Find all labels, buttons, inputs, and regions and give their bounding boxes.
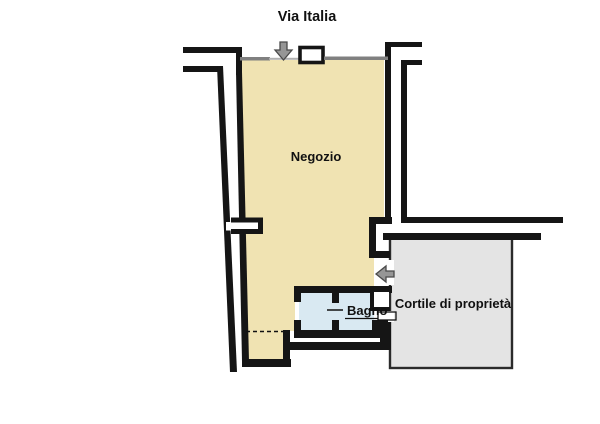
bagno-label: Bagno <box>347 303 388 318</box>
wall-topleft-outer-v <box>236 47 242 75</box>
wall-cortile-top <box>383 233 541 240</box>
wall-right-jog-h <box>369 217 392 224</box>
wall-bagno-bottom <box>294 330 391 338</box>
wall-topright-outer-h <box>385 42 422 47</box>
street-label: Via Italia <box>278 9 338 25</box>
wall-neighbor-east-h <box>401 217 563 223</box>
floor-plan: Via Italia <box>0 0 600 424</box>
wall-topleft-outer-h <box>183 47 242 53</box>
wall-topleft-inner-h <box>183 66 223 72</box>
storefront-glass-left <box>240 57 270 61</box>
wall-pocket-bottom <box>242 359 291 367</box>
recess-end-cap <box>258 218 263 235</box>
wall-outer-bottom <box>290 342 391 350</box>
wall-bagno-partition-top <box>332 293 339 303</box>
wall-courtyard-door-stub <box>369 251 390 258</box>
wall-negozio-right <box>385 42 391 218</box>
wall-bagno-top <box>294 286 392 293</box>
arrow-down-icon <box>275 42 292 60</box>
storefront-glass-right <box>324 57 388 61</box>
floor-plan-page: Via Italia <box>0 0 600 424</box>
cortile-label: Cortile di proprietà <box>395 296 512 311</box>
wall-cortile-corner-stub <box>380 337 391 346</box>
wall-neighbor-v <box>401 60 407 223</box>
negozio-label: Negozio <box>291 149 342 164</box>
shop-window-box <box>300 48 323 63</box>
wall-right-jog-v <box>369 224 376 252</box>
wall-bagno-left-stub-top <box>294 293 301 302</box>
